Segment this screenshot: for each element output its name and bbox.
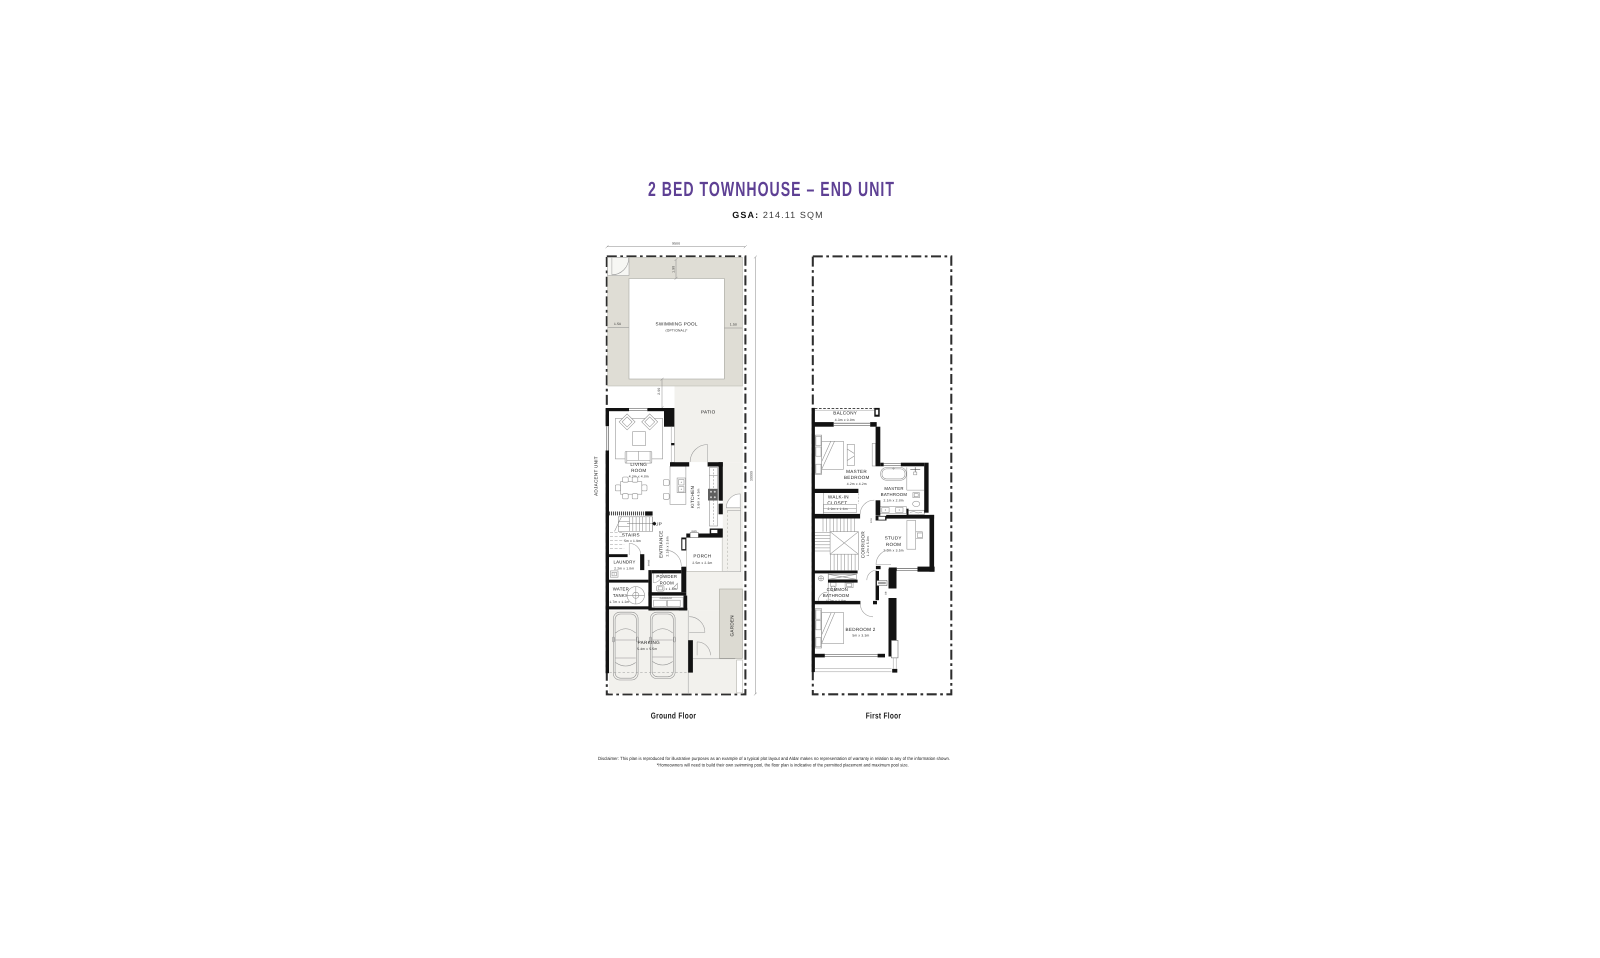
svg-text:2.5m x 2.3m: 2.5m x 2.3m — [692, 561, 712, 565]
svg-text:BEDROOM: BEDROOM — [844, 475, 870, 480]
svg-text:UP: UP — [655, 521, 662, 526]
svg-text:FCU: FCU — [870, 518, 873, 523]
svg-text:PORCH: PORCH — [693, 554, 711, 559]
svg-text:ROOM: ROOM — [660, 580, 675, 585]
svg-text:ADJACENT UNIT: ADJACENT UNIT — [593, 456, 598, 496]
svg-text:GSA: 214.11 SQM: GSA: 214.11 SQM — [732, 210, 823, 220]
svg-text:WATER: WATER — [613, 587, 629, 592]
svg-text:PATIO: PATIO — [701, 410, 716, 415]
svg-text:ROOM: ROOM — [886, 542, 901, 547]
svg-text:9500: 9500 — [672, 242, 680, 246]
svg-text:BATHROOM: BATHROOM — [823, 593, 850, 598]
svg-text:2.00: 2.00 — [657, 388, 661, 395]
svg-text:5m x 1.9m: 5m x 1.9m — [624, 539, 641, 543]
svg-text:5m x 3.3m: 5m x 3.3m — [852, 634, 869, 638]
svg-text:BATHROOM: BATHROOM — [881, 492, 908, 497]
svg-text:1.50: 1.50 — [730, 323, 737, 327]
svg-text:ROOM: ROOM — [631, 468, 646, 473]
svg-text:1.7m x 1.2m: 1.7m x 1.2m — [609, 600, 629, 604]
svg-text:TANKS: TANKS — [613, 593, 628, 598]
svg-text:4.3m x 0.9m: 4.3m x 0.9m — [835, 418, 855, 422]
svg-text:SWIMMING POOL: SWIMMING POOL — [656, 321, 698, 326]
svg-text:(OPTIONAL)*: (OPTIONAL)* — [666, 328, 689, 332]
svg-text:1.90: 1.90 — [672, 266, 676, 273]
svg-text:SHOE: SHOE — [647, 559, 650, 566]
svg-text:KITCHEN: KITCHEN — [690, 486, 695, 508]
svg-text:Disclaimer: This plan is repro: Disclaimer: This plan is reproduced for … — [598, 756, 950, 761]
svg-text:COMMON: COMMON — [827, 587, 849, 592]
svg-text:30000: 30000 — [750, 471, 754, 481]
svg-text:GWH: GWH — [691, 530, 697, 533]
svg-text:4.2m x 4.2m: 4.2m x 4.2m — [847, 482, 867, 486]
svg-text:2.1m x 2.8m: 2.1m x 2.8m — [884, 499, 904, 503]
svg-text:STAIRS: STAIRS — [622, 532, 640, 537]
svg-text:PARKING: PARKING — [638, 640, 660, 645]
svg-text:*Homeowners will need to build: *Homeowners will need to build their own… — [657, 763, 909, 768]
svg-text:5.4m x 5.5m: 5.4m x 5.5m — [637, 647, 657, 651]
svg-text:Ground Floor: Ground Floor — [651, 711, 697, 721]
svg-text:MASTER: MASTER — [884, 486, 903, 491]
svg-text:LAUNDRY: LAUNDRY — [614, 559, 636, 564]
svg-text:MASTER: MASTER — [846, 469, 867, 474]
svg-text:2.9m x 1.6m: 2.9m x 1.6m — [828, 507, 848, 511]
svg-text:2 BED TOWNHOUSE – END UNIT: 2 BED TOWNHOUSE – END UNIT — [648, 178, 895, 201]
svg-text:1.50: 1.50 — [614, 322, 621, 326]
svg-text:2.2m x 1.8m: 2.2m x 1.8m — [614, 566, 634, 570]
svg-text:4.2m x 4.8m: 4.2m x 4.8m — [629, 474, 649, 478]
svg-text:LIVING: LIVING — [630, 462, 647, 467]
svg-text:ENTRANCE: ENTRANCE — [659, 530, 664, 558]
svg-text:3.6m x 4.5m: 3.6m x 4.5m — [696, 488, 700, 508]
svg-text:DB: DB — [884, 591, 887, 595]
svg-text:2.1m x 3.6m: 2.1m x 3.6m — [665, 536, 669, 556]
svg-text:POWDER: POWDER — [656, 574, 677, 579]
svg-text:WALK-IN: WALK-IN — [828, 494, 849, 499]
svg-text:STUDY: STUDY — [885, 536, 902, 541]
svg-text:First Floor: First Floor — [866, 711, 902, 721]
svg-text:BEDROOM 2: BEDROOM 2 — [846, 627, 876, 632]
svg-text:CORRIDOR: CORRIDOR — [861, 531, 866, 559]
svg-text:BALCONY: BALCONY — [833, 410, 857, 415]
svg-text:GARDEN: GARDEN — [729, 615, 734, 636]
svg-text:1.2m x 5.9m: 1.2m x 5.9m — [866, 536, 870, 556]
